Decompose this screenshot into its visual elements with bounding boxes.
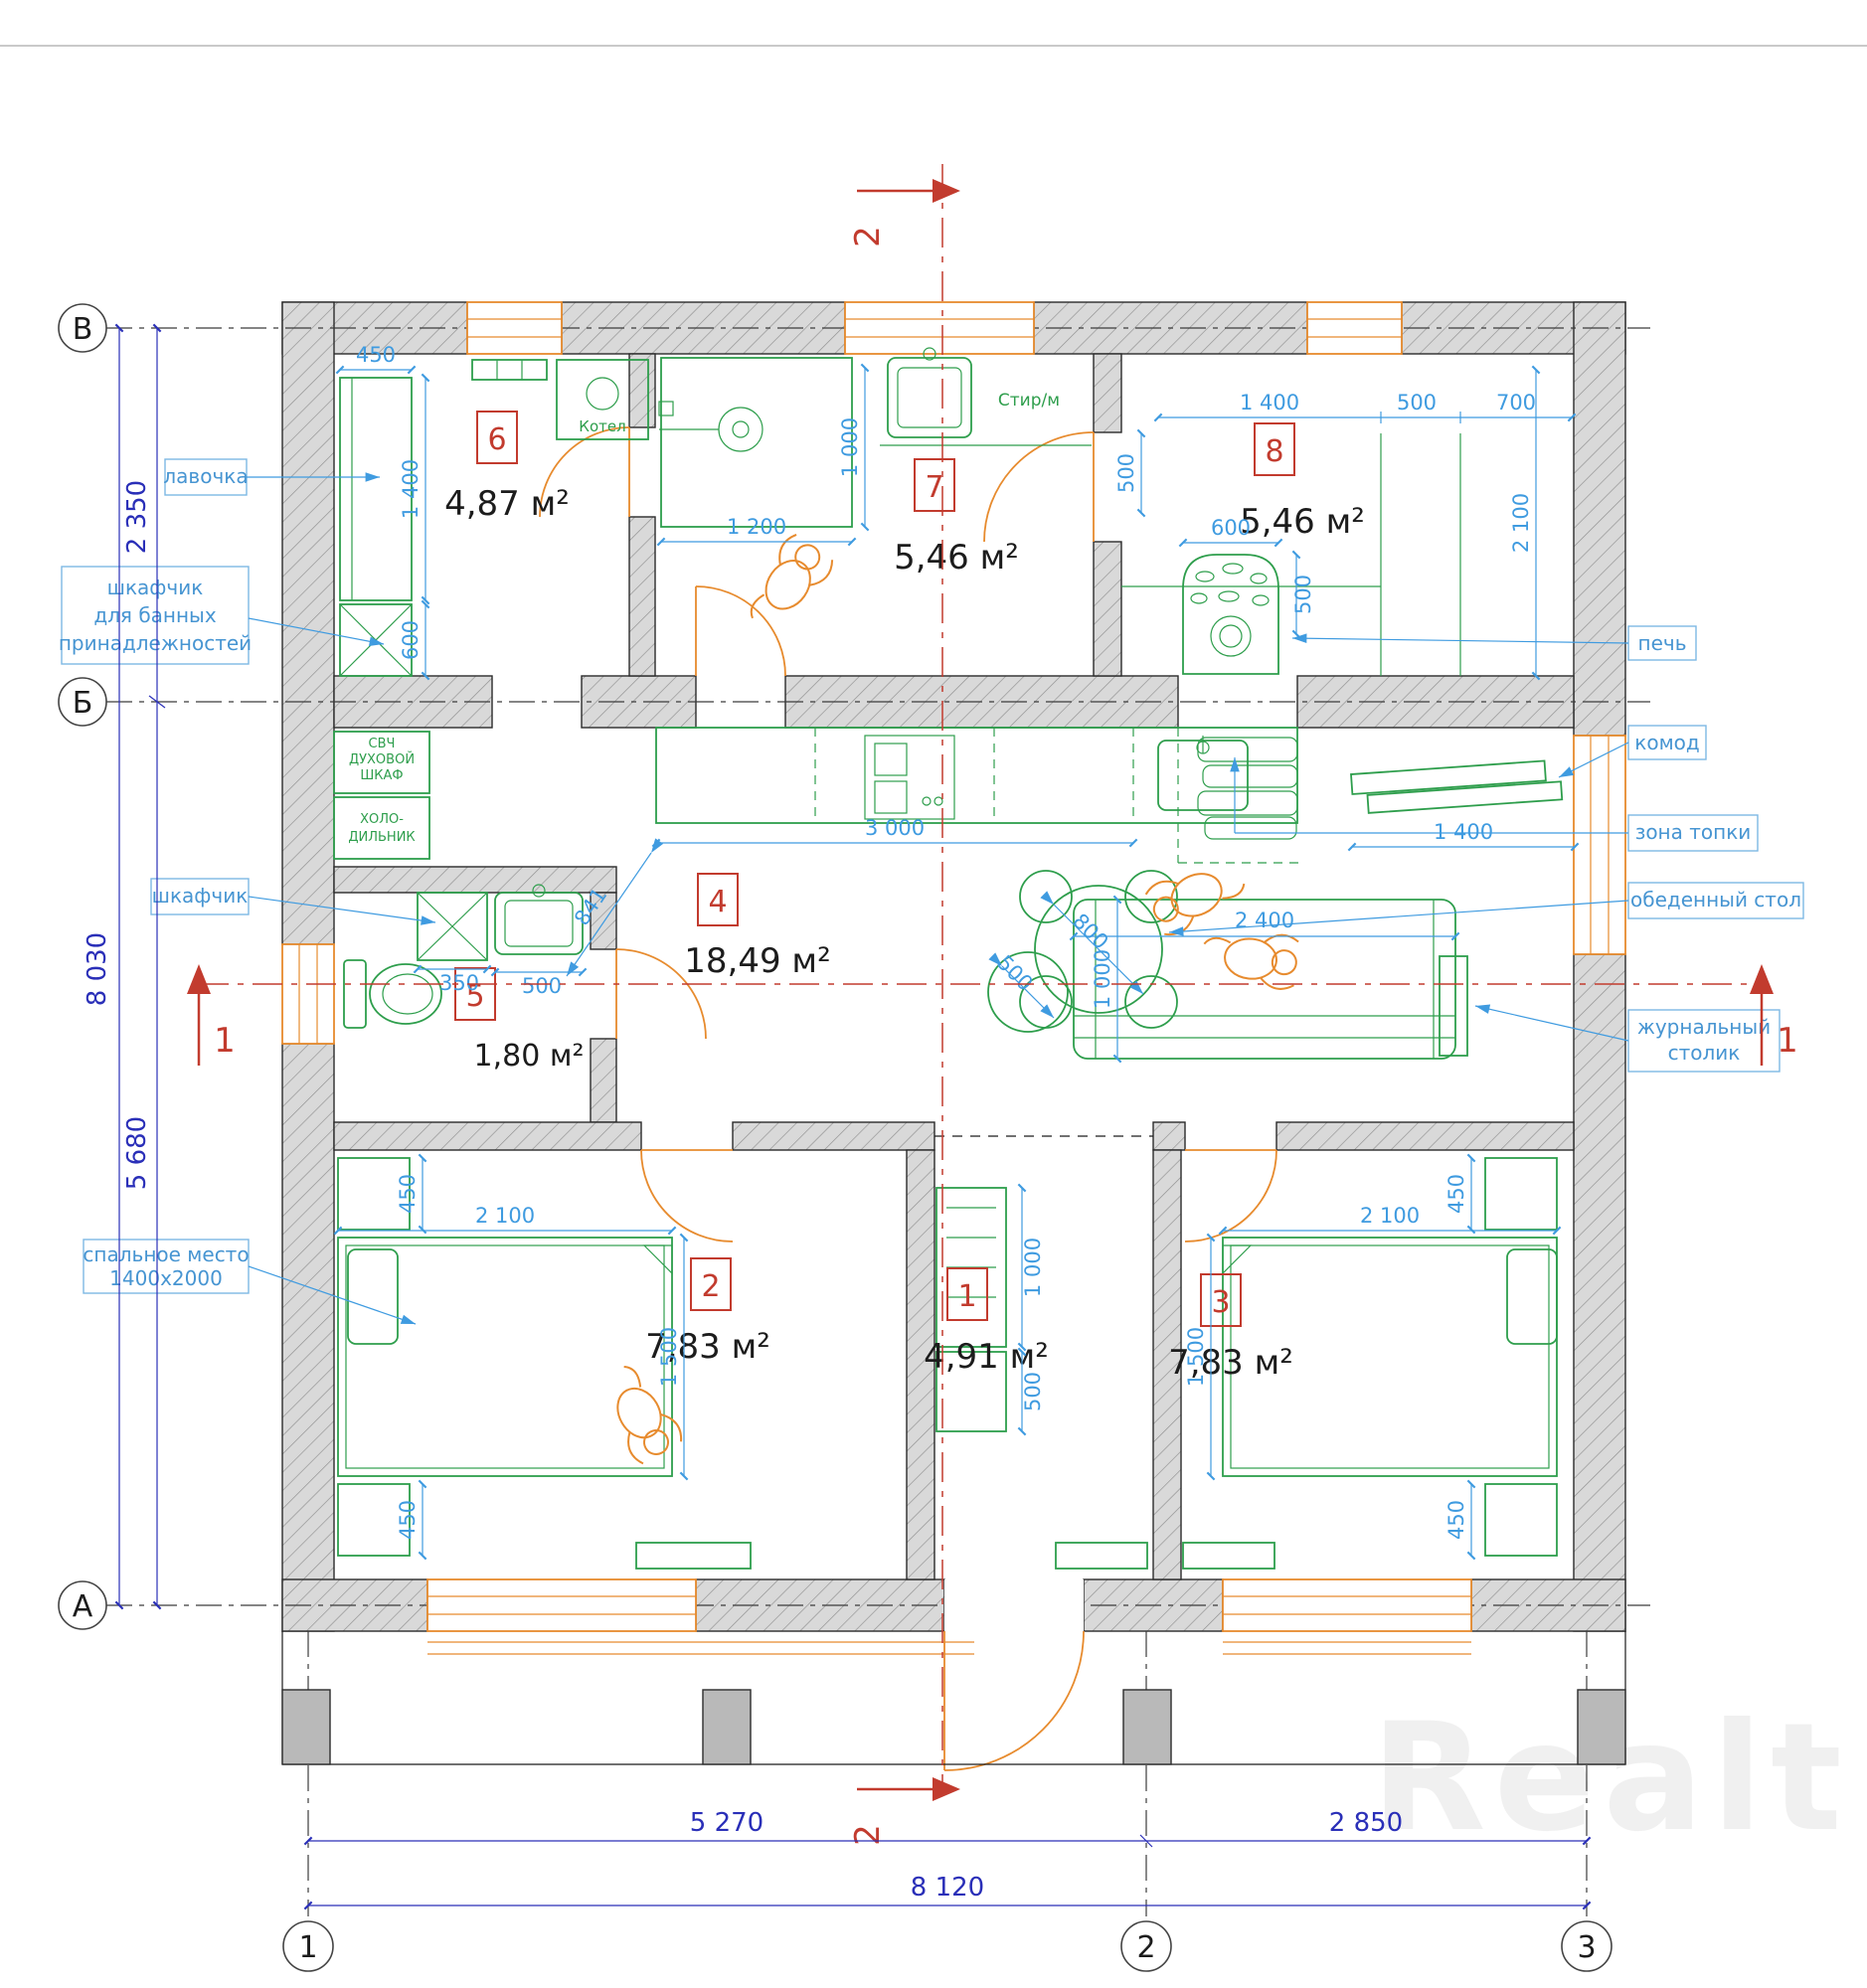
room6-area: 4,87 м² [444, 484, 570, 524]
window-right-living [1574, 736, 1625, 954]
stove [1183, 555, 1278, 674]
porch-column [1578, 1690, 1625, 1764]
section1-left-label: 1 [214, 1021, 236, 1061]
section2-bottom-label: 2 [848, 1824, 888, 1846]
dim-5680: 5 680 [122, 1116, 152, 1190]
bed [338, 1238, 672, 1476]
nightstand [1485, 1158, 1557, 1230]
sink-room7 [888, 348, 971, 437]
toilet [344, 960, 441, 1028]
svg-text:1 500: 1 500 [1184, 1327, 1208, 1387]
svg-text:1 400: 1 400 [1434, 820, 1493, 844]
svg-text:450: 450 [1444, 1500, 1468, 1540]
room1-number: 1 [957, 1279, 976, 1314]
svg-text:ДУХОВОЙ: ДУХОВОЙ [349, 751, 415, 767]
axis-number-1: 1 [298, 1930, 317, 1965]
svg-text:принадлежностей: принадлежностей [59, 631, 252, 655]
dim-2850: 2 850 [1329, 1808, 1403, 1838]
svg-text:600: 600 [399, 620, 423, 660]
shower-head [719, 408, 763, 451]
svg-text:1 400: 1 400 [1240, 391, 1299, 414]
shelf-strip [1056, 1543, 1147, 1569]
wc-sink [495, 885, 583, 954]
svg-text:3 000: 3 000 [865, 816, 925, 840]
shelf-strip [636, 1543, 751, 1569]
coffee-table [1440, 956, 1467, 1056]
nightstand [1485, 1484, 1557, 1556]
window-bottom-room2 [427, 1579, 696, 1631]
svg-text:СВЧ: СВЧ [369, 737, 396, 751]
svg-text:450: 450 [396, 1174, 420, 1214]
svg-text:500: 500 [1114, 453, 1138, 493]
shelf [472, 360, 547, 380]
axis-number-2: 2 [1136, 1930, 1155, 1965]
shower-tray [661, 358, 852, 527]
dim-8030: 8 030 [83, 932, 112, 1006]
room8-area: 5,46 м² [1240, 502, 1365, 542]
svg-text:1 000: 1 000 [838, 417, 862, 477]
shelf-strip [1183, 1543, 1274, 1569]
porch-column [703, 1690, 751, 1764]
window-top-room8 [1307, 302, 1402, 354]
door-room8 [984, 432, 1094, 542]
microwave-oven-box: СВЧ ДУХОВОЙ ШКАФ [334, 732, 429, 793]
svg-text:800: 800 [1068, 909, 1112, 953]
room6-number: 6 [487, 422, 506, 457]
room7-area: 5,46 м² [894, 538, 1019, 578]
door-room3 [1185, 1150, 1276, 1242]
svg-text:1400х2000: 1400х2000 [109, 1266, 223, 1290]
blanket-fold [644, 1245, 672, 1273]
window-top-room6 [467, 302, 562, 354]
living-area [988, 728, 1562, 1059]
door-entrance [944, 1579, 1084, 1770]
section2-top-label: 2 [848, 226, 888, 248]
room4-area: 18,49 м² [684, 941, 830, 981]
svg-text:ХОЛО-: ХОЛО- [360, 812, 404, 827]
wc-room5 [344, 885, 583, 1028]
svg-text:2 100: 2 100 [475, 1204, 535, 1228]
callout-pech: печь [1638, 631, 1687, 655]
corridor-appliances: СВЧ ДУХОВОЙ ШКАФ ХОЛО- ДИЛЬНИК [334, 732, 429, 859]
svg-text:600: 600 [1211, 516, 1251, 540]
window-top-room7 [845, 302, 1034, 354]
pillow [348, 1249, 398, 1344]
door-room7 [696, 586, 785, 676]
dim-2350: 2 350 [122, 480, 152, 554]
axis-letter-v: В [73, 312, 93, 347]
room5-area: 1,80 м² [474, 1039, 585, 1074]
room7-shower: Стир/м [659, 348, 1092, 527]
fridge-box: ХОЛО- ДИЛЬНИК [334, 797, 429, 859]
svg-text:1 000: 1 000 [1021, 1238, 1045, 1297]
window-left-wc [282, 944, 334, 1044]
callout-komod: комод [1634, 731, 1699, 754]
floor-plan-page: Realt [0, 0, 1867, 1988]
svg-text:700: 700 [1496, 391, 1536, 414]
svg-text:450: 450 [396, 1500, 420, 1540]
svg-text:500: 500 [1397, 391, 1437, 414]
callout-zona-topki: зона топки [1635, 820, 1752, 844]
blanket-fold [1223, 1245, 1251, 1273]
section1-right-label: 1 [1777, 1021, 1798, 1061]
svg-text:1 400: 1 400 [399, 459, 423, 519]
axis-letter-a: А [73, 1589, 93, 1624]
svg-text:2 100: 2 100 [1360, 1204, 1420, 1228]
svg-text:450: 450 [1444, 1174, 1468, 1214]
person-room7 [739, 532, 836, 639]
callout-bath-cabinet: шкафчик [107, 576, 204, 599]
callout-sleeping: спальное место [83, 1242, 249, 1266]
room4-number: 4 [708, 885, 727, 919]
svg-text:столик: столик [1668, 1041, 1741, 1065]
room2-number: 2 [701, 1269, 720, 1304]
callout-lavochka: лавочка [163, 464, 248, 488]
svg-text:500: 500 [1021, 1372, 1045, 1411]
svg-text:450: 450 [356, 343, 396, 367]
door-room2 [641, 1150, 733, 1242]
callout-dining-table: обеденный стол [1630, 888, 1801, 911]
svg-text:ШКАФ: ШКАФ [360, 768, 403, 783]
washing-machine-label: Стир/м [998, 391, 1060, 411]
callout-coffee-table: журнальный [1637, 1015, 1771, 1039]
svg-text:500: 500 [1291, 575, 1315, 614]
floor-plan-drawing: Realt [0, 0, 1867, 1988]
window-bottom-room3 [1223, 1579, 1471, 1631]
boiler-label: Котел [579, 417, 625, 435]
porch-column [282, 1690, 330, 1764]
axis-number-3: 3 [1577, 1930, 1596, 1965]
svg-text:500: 500 [992, 950, 1037, 995]
svg-text:1 200: 1 200 [727, 515, 786, 539]
room8-number: 8 [1265, 434, 1283, 469]
svg-text:для банных: для банных [93, 603, 217, 627]
svg-text:2 100: 2 100 [1509, 493, 1533, 553]
komod [1351, 759, 1562, 814]
svg-text:350: 350 [439, 971, 479, 995]
svg-text:1 500: 1 500 [657, 1327, 681, 1387]
svg-text:ДИЛЬНИК: ДИЛЬНИК [348, 830, 415, 845]
wc-cabinet [418, 893, 487, 960]
porch-column [1123, 1690, 1171, 1764]
cooktop [865, 736, 954, 819]
dim-8120: 8 120 [911, 1873, 984, 1903]
callout-shkafchik: шкафчик [152, 884, 249, 908]
axis-letter-b: Б [73, 686, 93, 721]
dim-5270: 5 270 [690, 1808, 764, 1838]
svg-text:500: 500 [522, 974, 562, 998]
svg-text:1 000: 1 000 [1091, 949, 1114, 1009]
room7-number: 7 [925, 470, 943, 505]
kitchen [656, 728, 1297, 823]
svg-text:2 400: 2 400 [1235, 909, 1294, 932]
room3-number: 3 [1211, 1285, 1230, 1320]
